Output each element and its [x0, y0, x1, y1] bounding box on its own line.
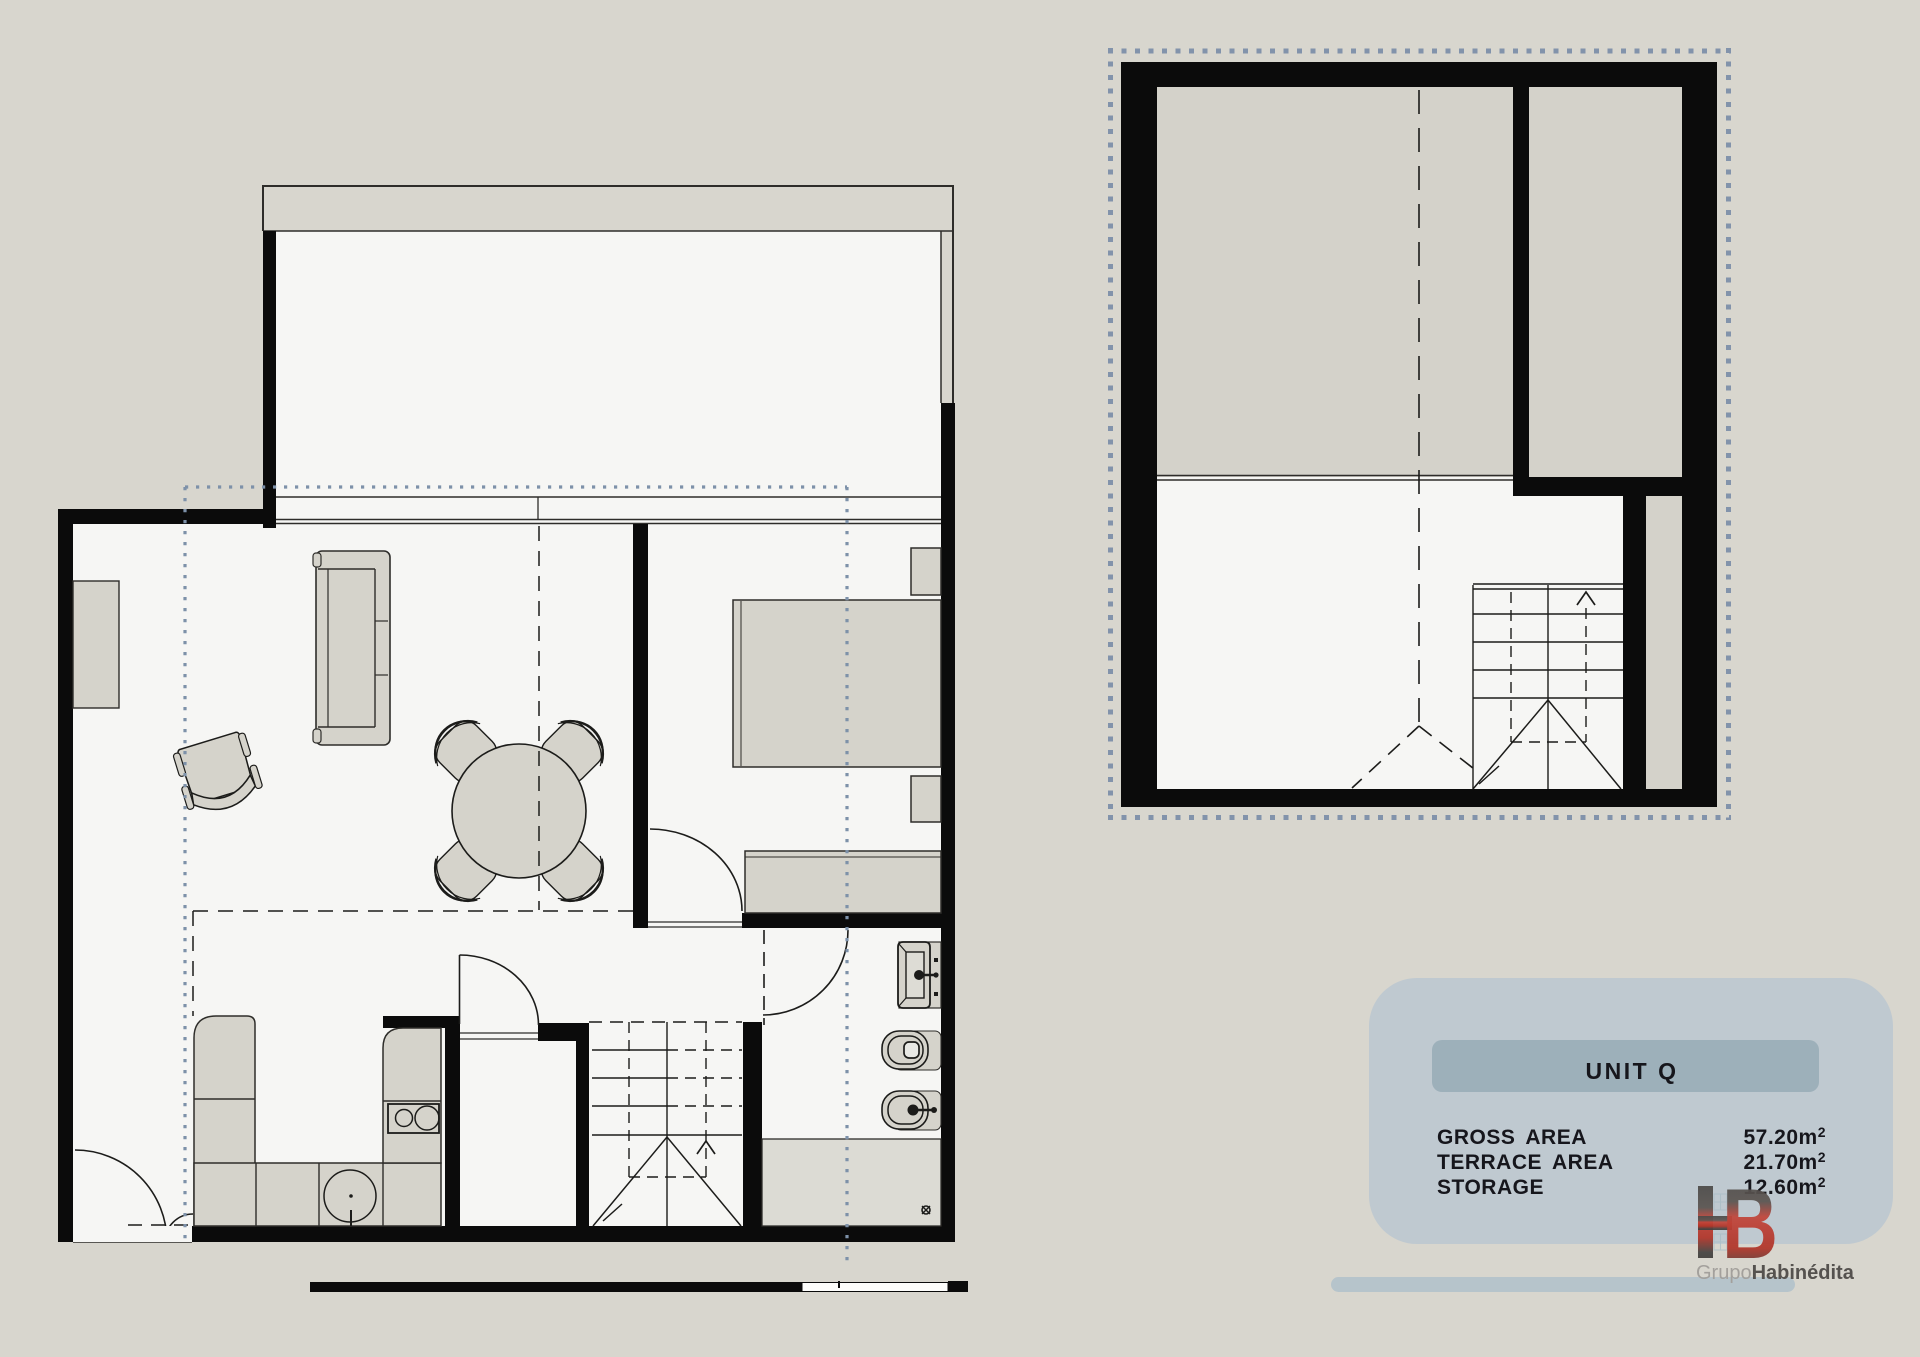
svg-text:STORAGE: STORAGE: [1437, 1176, 1544, 1199]
svg-text:GrupoHabinédita: GrupoHabinédita: [1696, 1262, 1855, 1284]
svg-text:GROSSAREA: GROSSAREA: [1437, 1126, 1587, 1149]
svg-text:UNIT Q: UNIT Q: [1586, 1058, 1679, 1084]
svg-text:TERRACEAREA: TERRACEAREA: [1437, 1151, 1614, 1174]
svg-text:57.20m2: 57.20m2: [1743, 1124, 1826, 1149]
